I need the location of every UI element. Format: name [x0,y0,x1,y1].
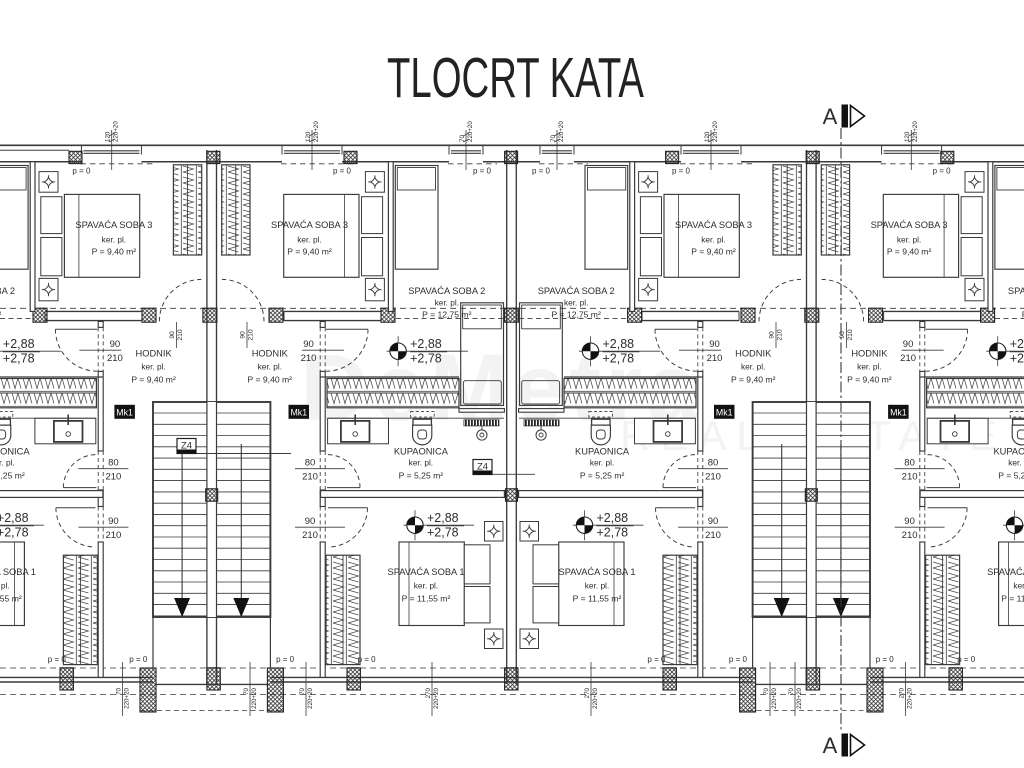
svg-text:p = 0: p = 0 [933,167,952,176]
svg-text:220+20: 220+20 [712,121,719,142]
svg-text:210: 210 [705,472,721,483]
svg-text:210: 210 [302,530,318,541]
svg-text:220+20: 220+20 [558,121,565,142]
svg-text:210: 210 [105,530,121,541]
svg-text:90: 90 [839,331,846,339]
svg-text:SPAVAĆA SOBA 1: SPAVAĆA SOBA 1 [388,567,465,577]
svg-text:120: 120 [305,131,312,142]
svg-text:P = 9,40 m²: P = 9,40 m² [287,247,332,257]
svg-text:210: 210 [301,353,317,364]
svg-text:ker. pl.: ker. pl. [564,298,588,308]
svg-text:P = 12,75 m²: P = 12,75 m² [422,310,471,320]
svg-text:P = 11,55 m²: P = 11,55 m² [402,594,451,604]
svg-text:210: 210 [177,329,184,341]
svg-text:Mk1: Mk1 [890,407,907,417]
svg-text:KUPAONICA: KUPAONICA [394,447,449,457]
svg-text:HODNIK: HODNIK [851,349,888,359]
svg-text:90: 90 [903,339,914,350]
svg-text:270: 270 [425,687,432,698]
svg-text:p = 0: p = 0 [532,167,551,176]
svg-text:A: A [823,733,838,758]
svg-text:210: 210 [900,353,916,364]
svg-text:+2,78: +2,78 [427,526,459,540]
svg-text:ker. pl.: ker. pl. [258,362,282,372]
svg-text:ker. pl.: ker. pl. [435,298,459,308]
svg-text:SPAVAĆA SOBA 2: SPAVAĆA SOBA 2 [538,286,615,296]
svg-text:220+20: 220+20 [113,121,120,142]
svg-text:210: 210 [902,530,918,541]
svg-text:70: 70 [299,687,306,694]
svg-text:90: 90 [110,339,121,350]
svg-text:90: 90 [768,331,775,339]
svg-text:P = 5,25 m²: P = 5,25 m² [399,471,444,481]
svg-text:220+20: 220+20 [433,687,440,708]
svg-text:Z4: Z4 [477,462,488,473]
svg-text:90: 90 [904,516,915,527]
svg-text:80: 80 [904,458,915,469]
svg-text:ker. pl.: ker. pl. [741,362,765,372]
svg-text:220+20: 220+20 [251,687,258,708]
svg-text:P = 9,40 m²: P = 9,40 m² [847,375,892,385]
svg-text:90: 90 [169,331,176,339]
svg-text:120: 120 [904,131,911,142]
svg-text:+2,78: +2,78 [410,352,442,366]
svg-text:Mk1: Mk1 [116,407,133,417]
svg-text:270: 270 [584,687,591,698]
svg-text:ker. pl.: ker. pl. [0,581,10,591]
svg-text:ker. pl.: ker. pl. [414,581,438,591]
svg-text:+2,88: +2,88 [0,511,29,525]
svg-text:ker. pl.: ker. pl. [102,235,126,245]
svg-text:p = 0: p = 0 [876,655,895,664]
svg-text:HODNIK: HODNIK [136,349,173,359]
svg-text:p = 0: p = 0 [729,655,748,664]
svg-text:220+20: 220+20 [592,687,599,708]
svg-text:+2,88: +2,88 [1010,337,1024,351]
svg-text:p = 0: p = 0 [957,655,976,664]
svg-text:KUPAONICA: KUPAONICA [0,447,30,457]
svg-text:SPAVAĆA SOBA 2: SPAVAĆA SOBA 2 [0,286,15,296]
svg-text:P = 9,40 m²: P = 9,40 m² [248,375,293,385]
svg-text:P = 12,75 m²: P = 12,75 m² [0,310,1,320]
svg-text:SPAVAĆA SOBA 2: SPAVAĆA SOBA 2 [1008,286,1024,296]
svg-text:SPAVAĆA SOBA 3: SPAVAĆA SOBA 3 [675,220,752,230]
svg-text:TLOCRT KATA: TLOCRT KATA [387,46,644,110]
svg-text:90: 90 [303,339,314,350]
svg-text:p = 0: p = 0 [358,655,377,664]
svg-text:70: 70 [115,687,122,694]
svg-text:+2,78: +2,78 [603,352,635,366]
svg-text:70: 70 [243,687,250,694]
svg-text:ker. pl.: ker. pl. [857,362,881,372]
svg-text:SPAVAĆA SOBA 1: SPAVAĆA SOBA 1 [987,567,1024,577]
svg-text:220+20: 220+20 [467,121,474,142]
svg-text:P = 5,25 m²: P = 5,25 m² [0,471,25,481]
svg-text:+2,78: +2,78 [3,352,35,366]
svg-text:P = 11,55 m²: P = 11,55 m² [573,594,622,604]
svg-text:p = 0: p = 0 [333,167,352,176]
svg-text:P = 11,55 m²: P = 11,55 m² [0,594,22,604]
svg-text:+2,78: +2,78 [0,526,29,540]
svg-text:KUPAONICA: KUPAONICA [575,447,630,457]
svg-text:ker. pl.: ker. pl. [585,581,609,591]
svg-text:210: 210 [707,353,723,364]
svg-text:+2,88: +2,88 [427,511,459,525]
svg-text:210: 210 [777,329,784,341]
svg-text:+2,78: +2,78 [1010,352,1024,366]
svg-text:P = 5,25 m²: P = 5,25 m² [580,471,625,481]
svg-text:210: 210 [302,472,318,483]
svg-text:70: 70 [763,687,770,694]
svg-text:SPAVAĆA SOBA 2: SPAVAĆA SOBA 2 [408,286,485,296]
svg-text:KUPAONICA: KUPAONICA [993,447,1024,457]
svg-text:P = 9,40 m²: P = 9,40 m² [731,375,776,385]
svg-text:+2,88: +2,88 [3,337,35,351]
svg-text:ker. pl.: ker. pl. [297,235,321,245]
svg-text:80: 80 [108,458,119,469]
svg-text:P = 11,55 m²: P = 11,55 m² [1001,594,1024,604]
svg-text:SPAVAĆA SOBA 1: SPAVAĆA SOBA 1 [559,567,636,577]
svg-text:210: 210 [847,329,854,341]
svg-text:270: 270 [898,687,905,698]
svg-text:ker. pl.: ker. pl. [141,362,165,372]
svg-text:220+20: 220+20 [771,687,778,708]
svg-text:P = 9,40 m²: P = 9,40 m² [131,375,176,385]
svg-text:Mk1: Mk1 [290,407,307,417]
svg-text:120: 120 [105,131,112,142]
svg-text:+2,78: +2,78 [597,526,629,540]
svg-text:P = 9,40 m²: P = 9,40 m² [92,247,137,257]
svg-text:90: 90 [239,331,246,339]
svg-text:90: 90 [108,516,119,527]
svg-text:220+20: 220+20 [123,687,130,708]
svg-text:ker. pl.: ker. pl. [0,458,15,468]
svg-text:p = 0: p = 0 [276,655,295,664]
svg-text:220+20: 220+20 [796,687,803,708]
svg-text:p = 0: p = 0 [48,655,67,664]
svg-text:Z4: Z4 [181,441,192,452]
svg-text:210: 210 [248,329,255,341]
svg-text:220+20: 220+20 [906,687,913,708]
svg-text:220+20: 220+20 [912,121,919,142]
svg-text:70: 70 [788,687,795,694]
svg-text:HODNIK: HODNIK [735,349,772,359]
svg-text:A: A [823,104,838,129]
svg-text:ker. pl.: ker. pl. [897,235,921,245]
svg-text:210: 210 [902,472,918,483]
svg-text:p = 0: p = 0 [129,655,148,664]
svg-text:P = 5,25 m²: P = 5,25 m² [998,471,1024,481]
svg-text:p = 0: p = 0 [72,167,91,176]
svg-text:90: 90 [305,516,316,527]
svg-text:80: 80 [305,458,316,469]
svg-text:90: 90 [709,339,720,350]
svg-text:+2,88: +2,88 [603,337,635,351]
svg-text:120: 120 [704,131,711,142]
svg-text:ker. pl.: ker. pl. [1013,581,1024,591]
svg-text:+2,88: +2,88 [410,337,442,351]
svg-text:220+20: 220+20 [313,121,320,142]
svg-text:210: 210 [105,472,121,483]
svg-text:P = 9,40 m²: P = 9,40 m² [887,247,932,257]
svg-text:P = 12,75 m²: P = 12,75 m² [552,310,601,320]
svg-text:ker. pl.: ker. pl. [409,458,433,468]
svg-text:p = 0: p = 0 [672,167,691,176]
svg-text:p = 0: p = 0 [473,167,492,176]
svg-text:ker. pl.: ker. pl. [590,458,614,468]
svg-text:P = 9,40 m²: P = 9,40 m² [691,247,736,257]
svg-text:90: 90 [708,516,719,527]
svg-text:ker. pl.: ker. pl. [1008,458,1024,468]
svg-text:p = 0: p = 0 [647,655,666,664]
svg-text:80: 80 [708,458,719,469]
svg-text:210: 210 [705,530,721,541]
svg-text:+2,88: +2,88 [597,511,629,525]
svg-text:210: 210 [107,353,123,364]
svg-text:SPAVAĆA SOBA 3: SPAVAĆA SOBA 3 [75,220,152,230]
svg-text:ker. pl.: ker. pl. [701,235,725,245]
svg-text:220+20: 220+20 [307,687,314,708]
svg-text:HODNIK: HODNIK [252,349,289,359]
svg-text:SPAVAĆA SOBA 3: SPAVAĆA SOBA 3 [871,220,948,230]
svg-text:SPAVAĆA SOBA 3: SPAVAĆA SOBA 3 [271,220,348,230]
svg-text:SPAVAĆA SOBA 1: SPAVAĆA SOBA 1 [0,567,36,577]
svg-text:Mk1: Mk1 [716,407,733,417]
